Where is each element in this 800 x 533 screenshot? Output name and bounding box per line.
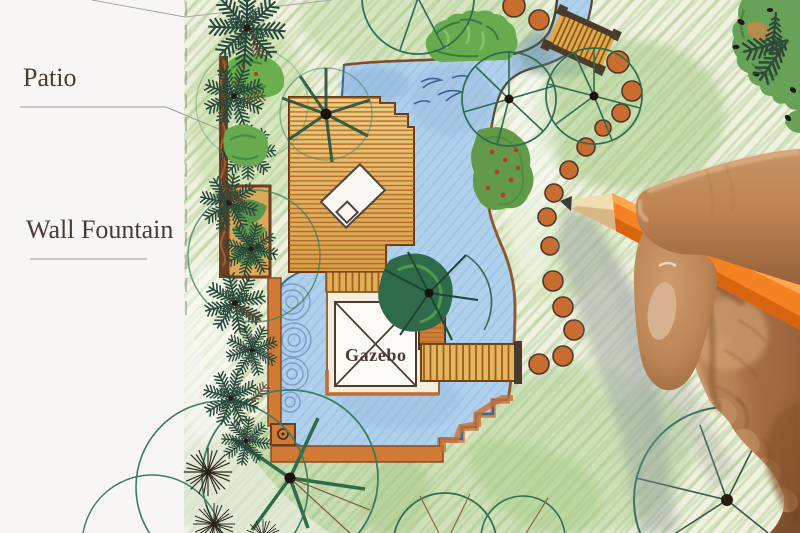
svg-text:Patio: Patio (23, 63, 76, 92)
svg-text:Wall Fountain: Wall Fountain (26, 215, 173, 244)
svg-text:Gazebo: Gazebo (345, 345, 407, 365)
